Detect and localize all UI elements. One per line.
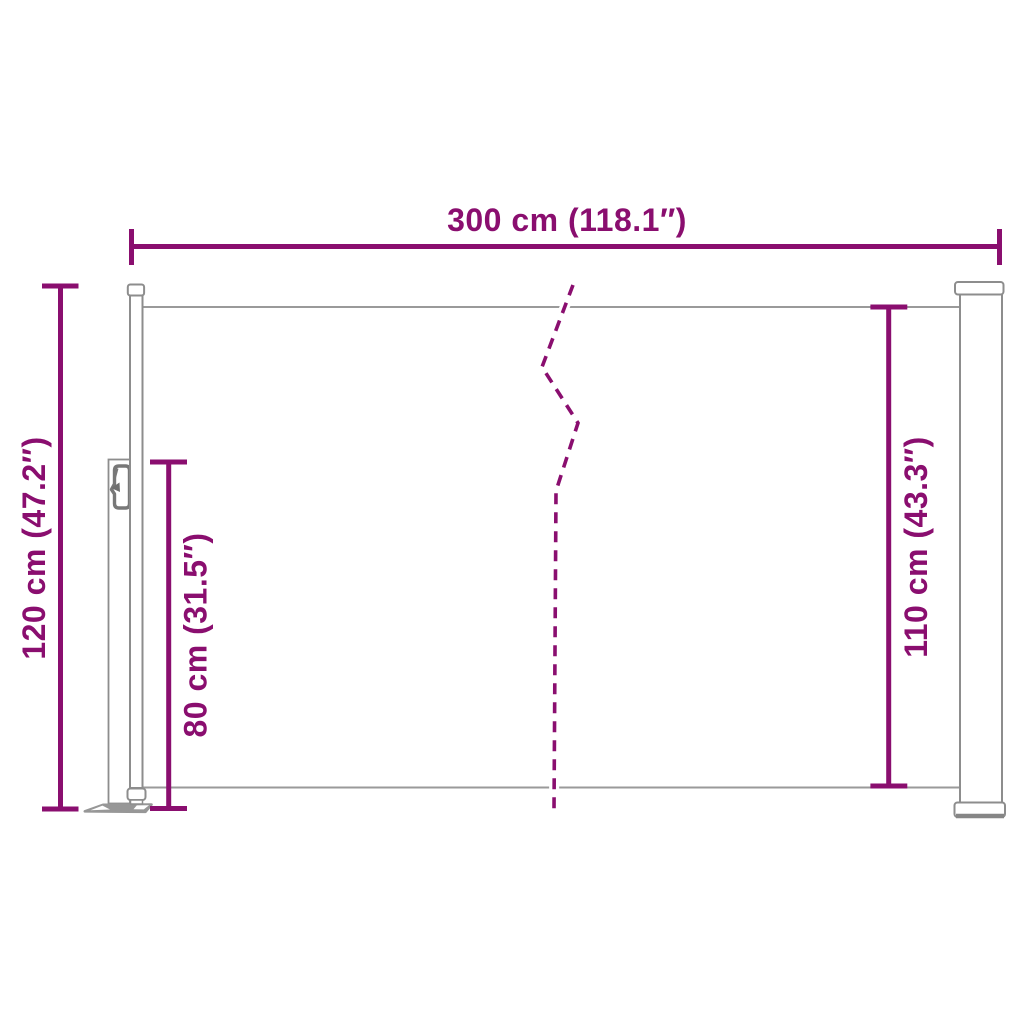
svg-text:80 cm (31.5″): 80 cm (31.5″) — [178, 532, 214, 737]
svg-text:110 cm (43.3″): 110 cm (43.3″) — [898, 436, 934, 658]
svg-text:300 cm (118.1″): 300 cm (118.1″) — [447, 202, 687, 238]
svg-text:120 cm (47.2″): 120 cm (47.2″) — [16, 436, 52, 659]
